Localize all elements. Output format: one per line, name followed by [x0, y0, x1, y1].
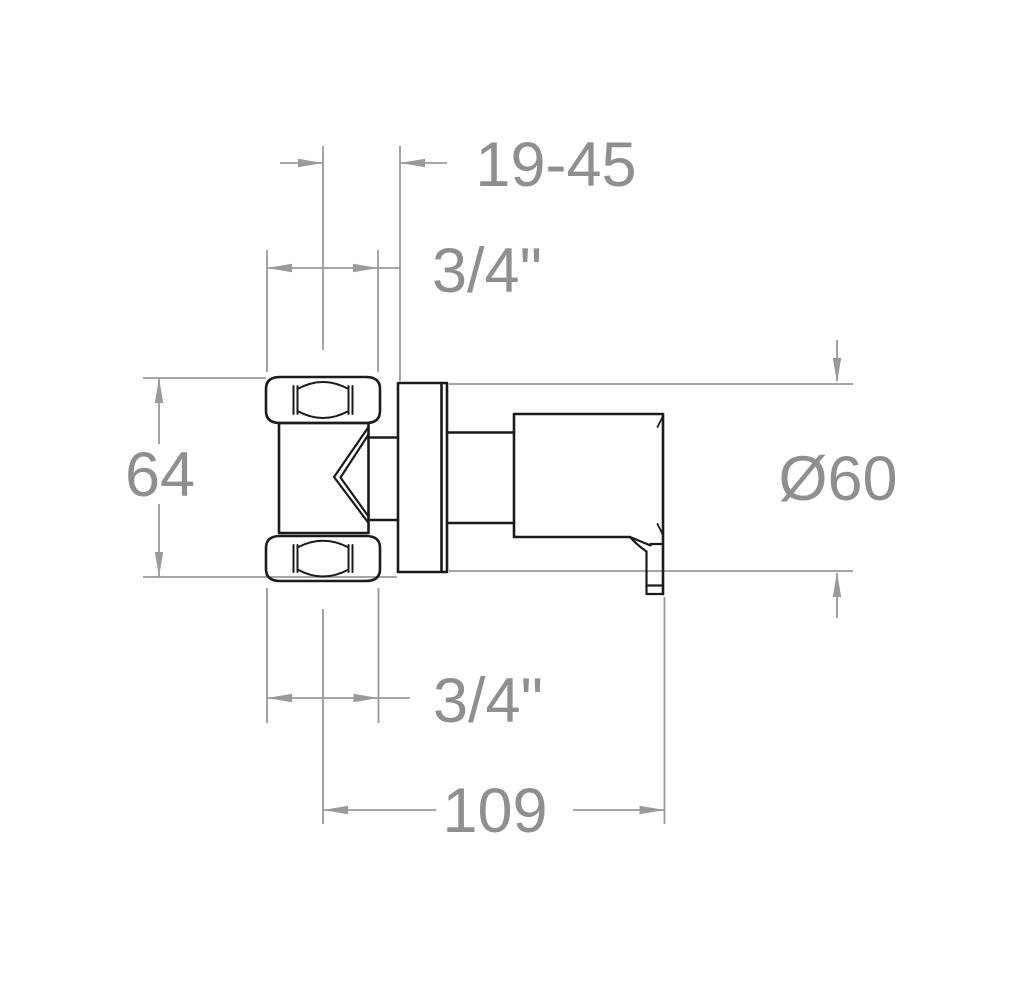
handle-cylinder — [514, 414, 663, 594]
valve-dimension-drawing: 19-45 3/4" 64 Ø60 3/4" 109 — [0, 0, 1013, 1000]
handle-lever — [630, 537, 663, 594]
bottom-hex-nut — [266, 536, 380, 581]
dim-outlet-thread-lines — [267, 588, 410, 723]
dim-label-inlet-thread: 3/4" — [432, 236, 542, 306]
dim-label-outlet-thread: 3/4" — [433, 666, 543, 736]
top-hex-nut — [266, 377, 380, 423]
valve-geometry — [266, 377, 663, 594]
dim-label-body-height: 64 — [125, 440, 195, 510]
bottom-hex-nut-facets — [294, 541, 353, 577]
dim-label-embedment-depth: 19-45 — [475, 130, 636, 200]
drawing-canvas: 19-45 3/4" 64 Ø60 3/4" 109 — [0, 0, 1013, 1000]
dim-embedment-depth-arrows — [298, 159, 425, 167]
valve-cone-seat — [334, 427, 369, 523]
wall-plate — [398, 383, 447, 572]
dimension-labels: 19-45 3/4" 64 Ø60 3/4" 109 — [125, 130, 898, 846]
valve-body — [279, 423, 369, 533]
dim-label-handle-diameter: Ø60 — [778, 444, 897, 514]
dim-embedment-depth-lines — [280, 146, 447, 381]
dim-label-total-depth: 109 — [442, 776, 547, 846]
top-hex-nut-facets — [294, 382, 353, 418]
